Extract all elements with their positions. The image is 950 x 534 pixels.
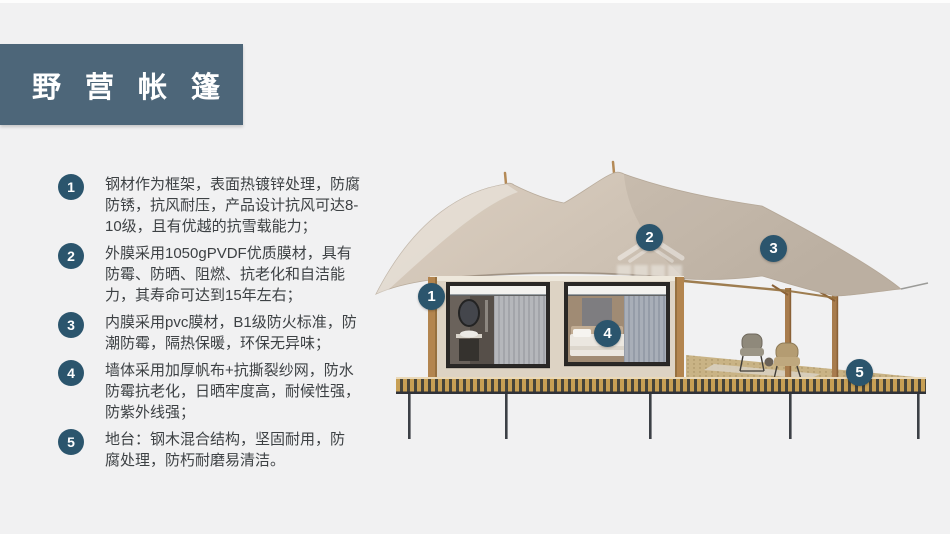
tent-cabin bbox=[428, 276, 684, 380]
tent-illustration bbox=[368, 158, 950, 458]
number-badge-5: 5 bbox=[58, 429, 84, 455]
window-bathroom bbox=[446, 282, 550, 369]
platform-base bbox=[396, 377, 926, 439]
feature-item-2: 2 外膜采用1050gPVDF优质膜材，具有 防霉、防晒、阻燃、抗老化和自洁能 … bbox=[58, 243, 394, 306]
number-badge-1: 1 bbox=[58, 174, 84, 200]
sink-basin bbox=[460, 331, 478, 338]
roof-pole-tip-center bbox=[613, 162, 614, 173]
roof-pole-tip-left bbox=[505, 173, 506, 184]
terrace-deck bbox=[686, 355, 926, 379]
callout-badge-2: 2 bbox=[636, 224, 663, 251]
platform-legs bbox=[408, 394, 920, 439]
callout-badge-1: 1 bbox=[418, 283, 445, 310]
feature-text-1: 钢材作为框架，表面热镀锌处理，防腐 防锈，抗风耐压，产品设计抗风可达8- 10级… bbox=[105, 174, 360, 237]
callout-badge-4: 4 bbox=[594, 320, 621, 347]
slide-canvas: 野营帐篷 1 钢材作为框架，表面热镀锌处理，防腐 防锈，抗风耐压，产品设计抗风可… bbox=[0, 0, 950, 534]
number-badge-4: 4 bbox=[58, 360, 84, 386]
page-title: 野营帐篷 bbox=[0, 64, 243, 106]
number-badge-3: 3 bbox=[58, 312, 84, 338]
curtain-right-window bbox=[624, 296, 666, 362]
callout-badge-5: 5 bbox=[846, 359, 873, 386]
callout-badge-3: 3 bbox=[760, 235, 787, 262]
feature-text-5: 地台：钢木混合结构，坚固耐用，防 腐处理，防朽耐磨易清洁。 bbox=[105, 429, 345, 471]
feature-item-5: 5 地台：钢木混合结构，坚固耐用，防 腐处理，防朽耐磨易清洁。 bbox=[58, 429, 394, 471]
feature-text-3: 内膜采用pvc膜材，B1级防火标准，防 潮防霉，隔热保暖，环保无异味； bbox=[105, 312, 357, 354]
side-table bbox=[765, 358, 774, 367]
round-mirror bbox=[459, 300, 479, 326]
feature-item-4: 4 墙体采用加厚帆布+抗撕裂纱网，防水 防霉抗老化，日晒牢度高，耐候性强， 防紫… bbox=[58, 360, 394, 423]
feature-item-3: 3 内膜采用pvc膜材，B1级防火标准，防 潮防霉，隔热保暖，环保无异味； bbox=[58, 312, 394, 354]
feature-text-2: 外膜采用1050gPVDF优质膜材，具有 防霉、防晒、阻燃、抗老化和自洁能 力，… bbox=[105, 243, 352, 306]
feature-item-1: 1 钢材作为框架，表面热镀锌处理，防腐 防锈，抗风耐压，产品设计抗风可达8- 1… bbox=[58, 174, 394, 237]
curtain-left-window bbox=[494, 296, 546, 364]
top-divider bbox=[0, 0, 950, 3]
feature-text-4: 墙体采用加厚帆布+抗撕裂纱网，防水 防霉抗老化，日晒牢度高，耐候性强， 防紫外线… bbox=[105, 360, 360, 423]
number-badge-2: 2 bbox=[58, 243, 84, 269]
page-title-banner: 野营帐篷 bbox=[0, 44, 243, 125]
guy-stick bbox=[901, 283, 928, 289]
feature-list: 1 钢材作为框架，表面热镀锌处理，防腐 防锈，抗风耐压，产品设计抗风可达8- 1… bbox=[58, 174, 394, 477]
